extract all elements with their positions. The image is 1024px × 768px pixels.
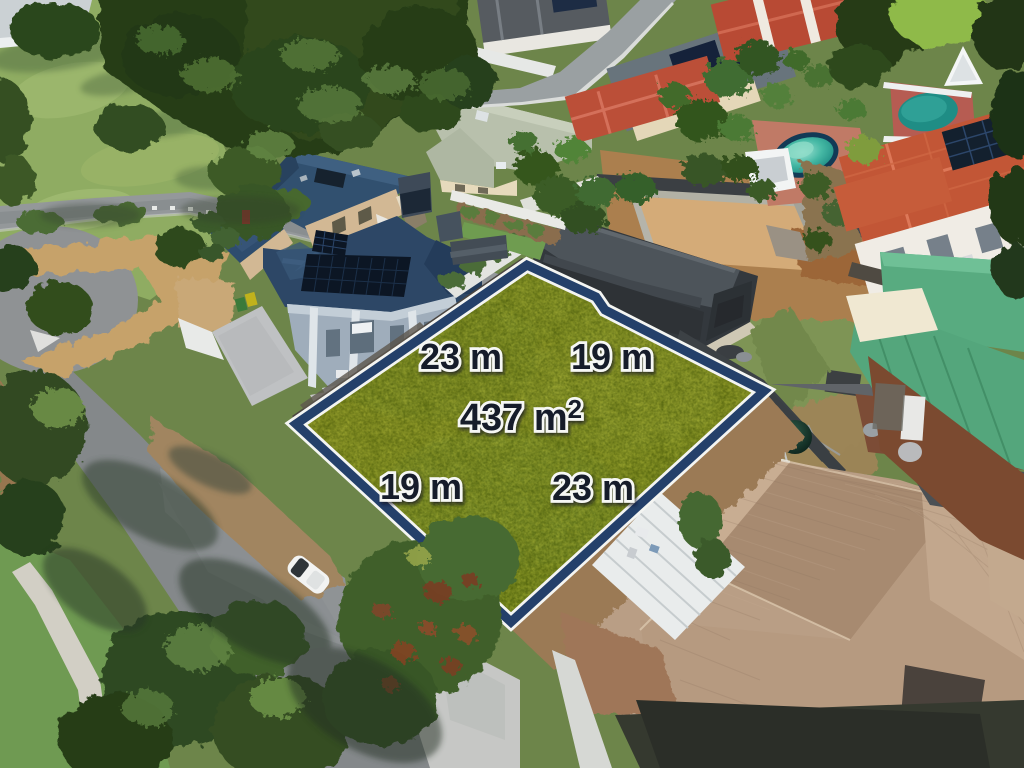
- svg-text:19 m: 19 m: [380, 466, 462, 507]
- svg-text:19 m: 19 m: [571, 336, 653, 377]
- svg-text:437 m2: 437 m2: [460, 394, 582, 439]
- svg-text:23 m: 23 m: [552, 467, 634, 508]
- svg-text:23 m: 23 m: [420, 336, 502, 377]
